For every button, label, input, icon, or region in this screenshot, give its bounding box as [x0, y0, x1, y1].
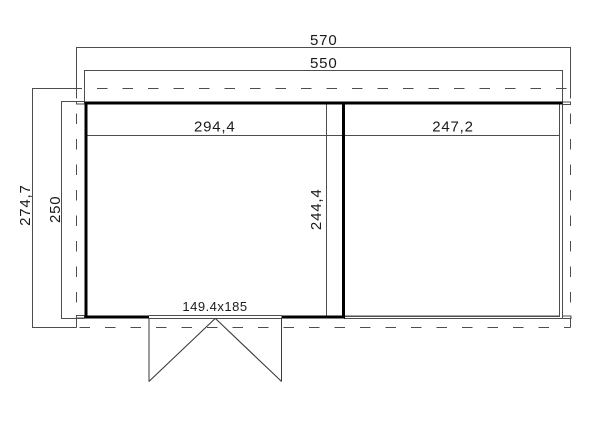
svg-text:247,2: 247,2	[432, 118, 474, 135]
svg-text:244,4: 244,4	[308, 189, 325, 231]
svg-text:294,4: 294,4	[194, 118, 236, 135]
svg-text:250: 250	[47, 196, 64, 223]
svg-text:149.4x185: 149.4x185	[182, 299, 247, 314]
svg-text:550: 550	[310, 55, 337, 72]
svg-text:274,7: 274,7	[17, 184, 34, 226]
svg-text:570: 570	[310, 32, 337, 49]
